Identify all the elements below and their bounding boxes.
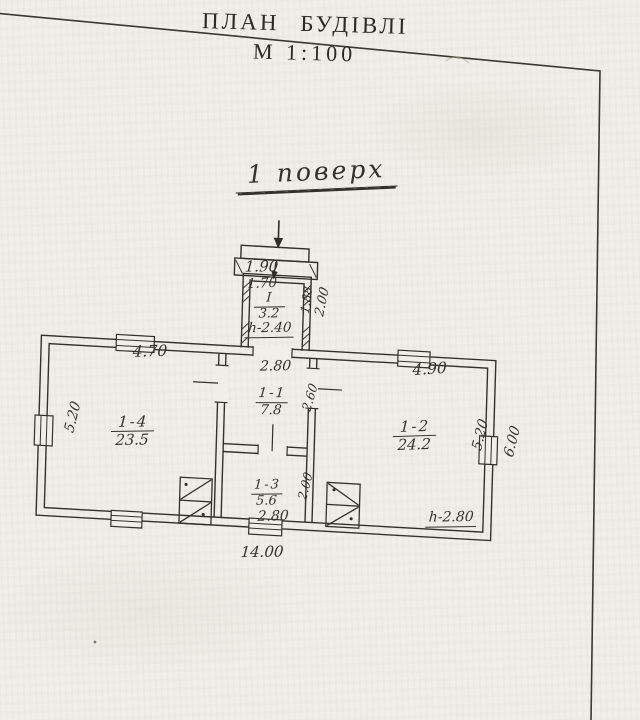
door-swing-tick [272, 424, 273, 451]
floor-plan-linework [29, 193, 560, 604]
door-opening-porch [253, 345, 292, 359]
room-area: 24.2 [392, 435, 436, 455]
room-1-3-label: 1-3 5.6 [250, 478, 283, 509]
paper-speck [94, 641, 97, 644]
room-1-2-height-label: h-2.80 [425, 509, 477, 528]
window [111, 510, 142, 528]
window [34, 415, 53, 446]
porch-room-number: I [264, 291, 276, 306]
dim-overall-width: 14.00 [240, 542, 284, 561]
dim-room-1-4-width: 4.70 [132, 342, 167, 361]
room-number: 1-1 [256, 386, 289, 402]
room-area: 7.8 [254, 402, 287, 419]
room-number: 1-3 [251, 478, 283, 493]
dim-room-1-2-width: 4.90 [412, 359, 447, 379]
room-1-1-label: 1-1 7.8 [254, 386, 288, 418]
door-opening-room-1-4 [215, 365, 229, 403]
dim-room-1-3-width: 2.80 [257, 508, 289, 525]
door-swing-tick [193, 382, 218, 383]
scanned-floor-plan-page: ПЛАН БУДІВЛІ М 1:100 1 поверх [0, 0, 640, 720]
porch-height-label: h-2.40 [245, 320, 295, 339]
room-1-2-label: 1-2 24.2 [392, 418, 437, 455]
title-block: ПЛАН БУДІВЛІ М 1:100 [134, 6, 475, 70]
porch-room-label: I 3.2 [253, 291, 286, 322]
dim-entry-step-outer: 1.90 [244, 257, 279, 276]
door-swing-tick [318, 389, 342, 390]
dim-room-1-1-width: 2.80 [260, 358, 292, 374]
room-1-4-label: 1-4 23.5 [110, 413, 156, 449]
room-area: 23.5 [110, 431, 155, 450]
room-number: 1-4 [116, 413, 151, 431]
floor-plan-drawing: 1.90 1.70 I 3.2 h-2.40 1.88 2.00 4.70 5.… [29, 215, 559, 604]
room-number: 1-2 [398, 418, 433, 436]
